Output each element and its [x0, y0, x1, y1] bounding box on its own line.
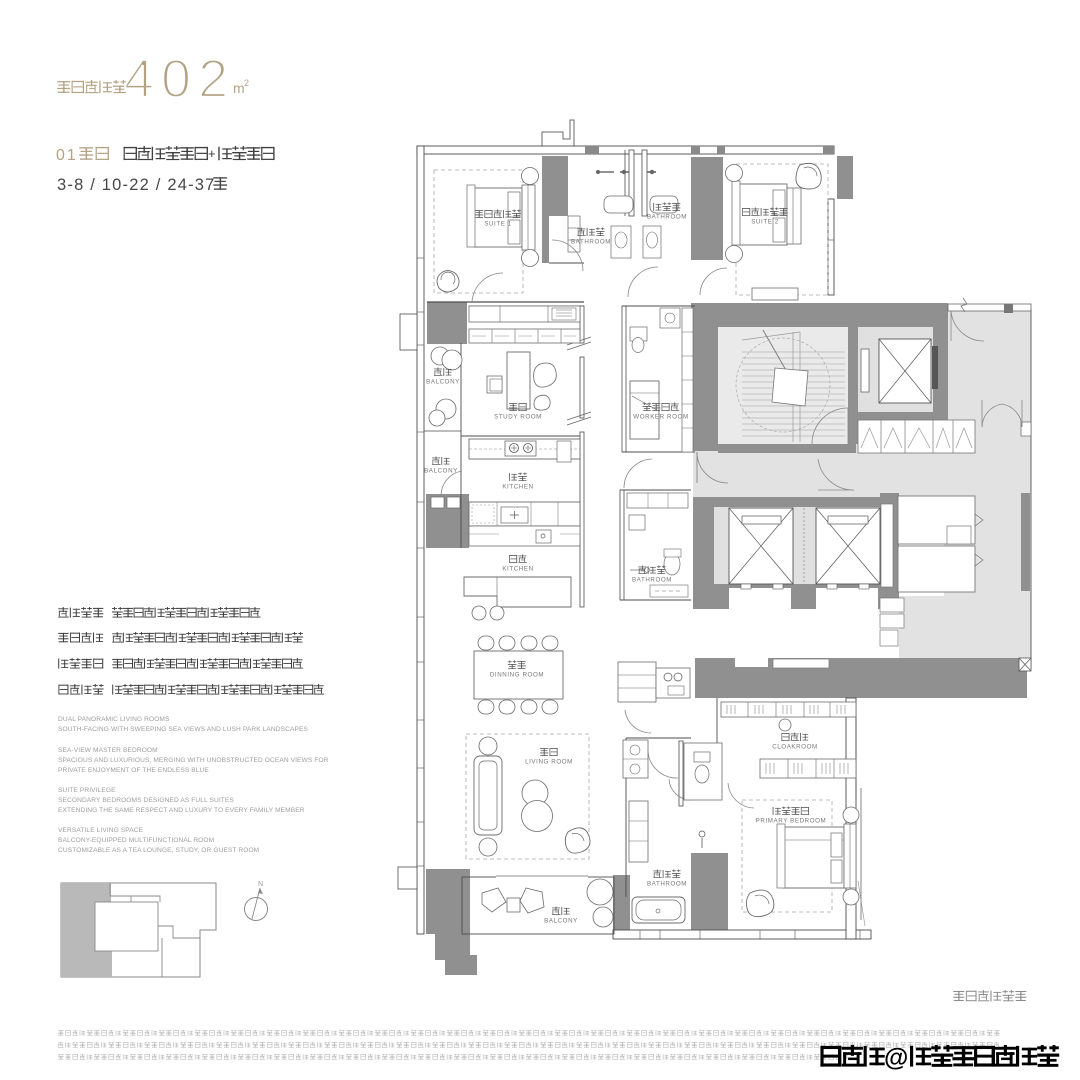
svg-text:KITCHEN: KITCHEN [502, 484, 533, 491]
svg-text:402: 402 [124, 49, 235, 109]
svg-text:BALCONY: BALCONY [426, 379, 460, 386]
svg-text:SECONDARY BEDROOMS DESIGNED AS: SECONDARY BEDROOMS DESIGNED AS FULL SUIT… [58, 797, 234, 804]
svg-text:SPACIOUS AND LUXURIOUS, MERGIN: SPACIOUS AND LUXURIOUS, MERGING WITH UNO… [58, 757, 329, 764]
svg-text:DUAL PANORAMIC LIVING ROOMS: DUAL PANORAMIC LIVING ROOMS [58, 716, 170, 723]
svg-text:LIVING ROOM: LIVING ROOM [525, 759, 573, 766]
svg-text:CUSTOMIZABLE AS A TEA LOUNGE,: CUSTOMIZABLE AS A TEA LOUNGE, STUDY, OR … [58, 847, 259, 854]
svg-text:PRIVATE ENJOYMENT OF THE ENDLE: PRIVATE ENJOYMENT OF THE ENDLESS BLUE [58, 767, 209, 774]
svg-text:VERSATILE LIVING SPACE: VERSATILE LIVING SPACE [58, 827, 144, 834]
svg-text:SUITE PRIVILEGE: SUITE PRIVILEGE [58, 787, 116, 794]
svg-text:SEA-VIEW MASTER BEDROOM: SEA-VIEW MASTER BEDROOM [58, 747, 158, 754]
svg-text:SUITE 1: SUITE 1 [484, 221, 512, 228]
svg-text:EXTENDING THE SAME RESPECT AND: EXTENDING THE SAME RESPECT AND LUXURY TO… [58, 807, 305, 814]
svg-text:m: m [233, 80, 245, 96]
svg-text:+: + [208, 146, 216, 161]
svg-text:2: 2 [244, 78, 249, 88]
svg-text:CLOAKROOM: CLOAKROOM [772, 744, 818, 751]
svg-text:BALCONY-EQUIPPED MULTIFUNCTION: BALCONY-EQUIPPED MULTIFUNCTIONAL ROOM [58, 837, 214, 844]
svg-text:01: 01 [56, 147, 78, 164]
svg-text:3-8 / 10-22 / 24-37: 3-8 / 10-22 / 24-37 [57, 176, 216, 194]
svg-text:PRIMARY BEDROOM: PRIMARY BEDROOM [756, 818, 827, 825]
svg-text:KITCHEN: KITCHEN [502, 566, 533, 573]
svg-text:BATHROOM: BATHROOM [647, 214, 687, 221]
svg-text:@: @ [884, 1044, 908, 1072]
svg-text:WORKER ROOM: WORKER ROOM [633, 414, 688, 421]
svg-text:BALCONY: BALCONY [424, 468, 458, 475]
svg-text:BATHROOM: BATHROOM [647, 881, 687, 888]
svg-text:SUITE 2: SUITE 2 [751, 219, 779, 226]
svg-text:N: N [258, 881, 263, 888]
svg-text:SOUTH-FACING WITH SWEEPING SEA: SOUTH-FACING WITH SWEEPING SEA VIEWS AND… [58, 726, 308, 733]
svg-text:STUDY ROOM: STUDY ROOM [494, 414, 542, 421]
svg-text:BATHROOM: BATHROOM [632, 577, 672, 584]
svg-text:BATHROOM: BATHROOM [571, 239, 611, 246]
svg-text:DINNING ROOM: DINNING ROOM [490, 672, 544, 679]
svg-text:BALCONY: BALCONY [544, 918, 578, 925]
